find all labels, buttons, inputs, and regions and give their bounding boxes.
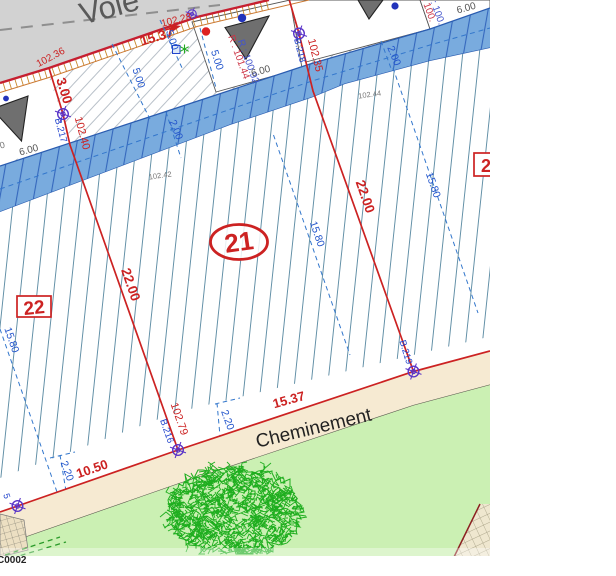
svg-text:22: 22 <box>23 297 46 320</box>
svg-text:B.216: B.216 <box>157 418 175 445</box>
svg-text:2.20: 2.20 <box>218 408 236 431</box>
svg-text:15.37: 15.37 <box>271 388 306 411</box>
svg-text:C0002: C0002 <box>0 555 27 566</box>
svg-text:2.20: 2.20 <box>58 459 76 482</box>
svg-text:5: 5 <box>1 492 12 500</box>
svg-text:21: 21 <box>223 225 256 259</box>
svg-text:2: 2 <box>481 156 491 176</box>
